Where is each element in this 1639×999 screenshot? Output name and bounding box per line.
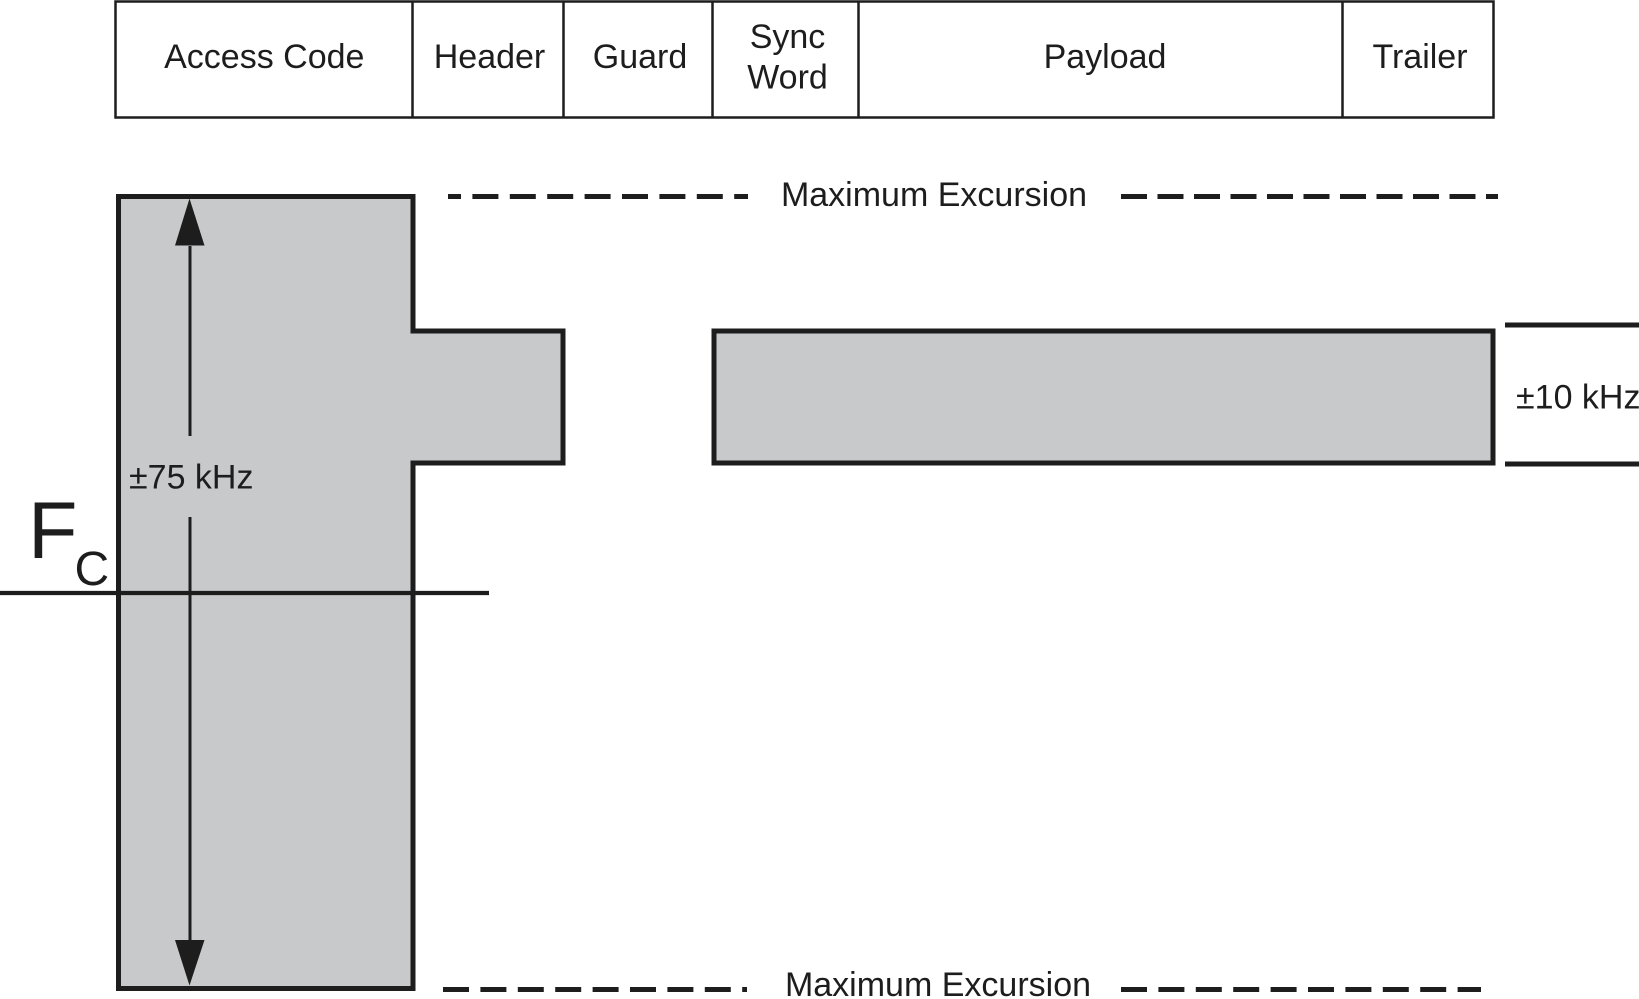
- svg-text:F: F: [28, 486, 77, 576]
- svg-text:Word: Word: [747, 59, 828, 97]
- svg-text:Maximum Excursion: Maximum Excursion: [781, 176, 1087, 214]
- svg-text:Maximum Excursion: Maximum Excursion: [785, 966, 1091, 999]
- svg-text:±75 kHz: ±75 kHz: [129, 459, 253, 497]
- svg-text:Payload: Payload: [1044, 38, 1167, 76]
- svg-text:±10 kHz: ±10 kHz: [1516, 379, 1639, 417]
- svg-text:Guard: Guard: [593, 38, 688, 76]
- svg-text:C: C: [75, 543, 110, 596]
- svg-text:Trailer: Trailer: [1372, 38, 1467, 76]
- svg-text:Sync: Sync: [750, 18, 826, 56]
- svg-text:Header: Header: [434, 38, 546, 76]
- svg-text:Access Code: Access Code: [164, 38, 364, 76]
